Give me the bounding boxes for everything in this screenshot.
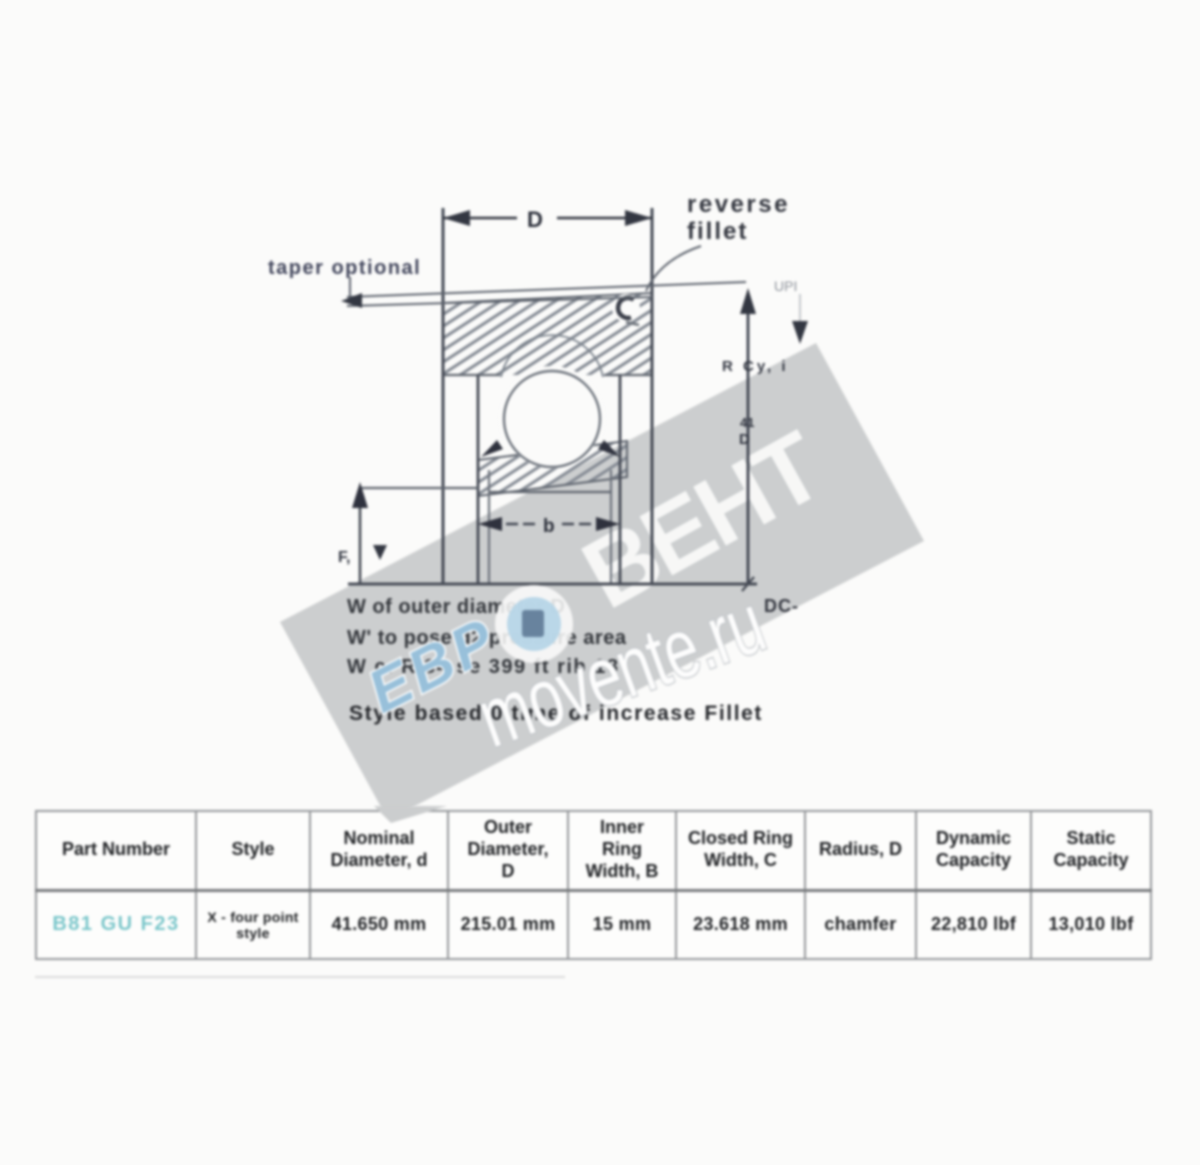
svg-text:41: 41: [740, 415, 754, 430]
svg-text:DC-: DC-: [764, 596, 799, 616]
svg-text:D: D: [527, 207, 543, 232]
svg-text:fillet: fillet: [687, 218, 748, 245]
svg-text:D: D: [739, 431, 750, 448]
svg-text:R Cy, i: R Cy, i: [722, 358, 789, 375]
svg-text:b: b: [543, 516, 555, 537]
svg-text:UPI: UPI: [774, 278, 797, 294]
svg-text:F,: F,: [338, 549, 350, 566]
svg-text:taper optional: taper optional: [268, 257, 421, 279]
svg-text:reverse: reverse: [687, 191, 790, 218]
